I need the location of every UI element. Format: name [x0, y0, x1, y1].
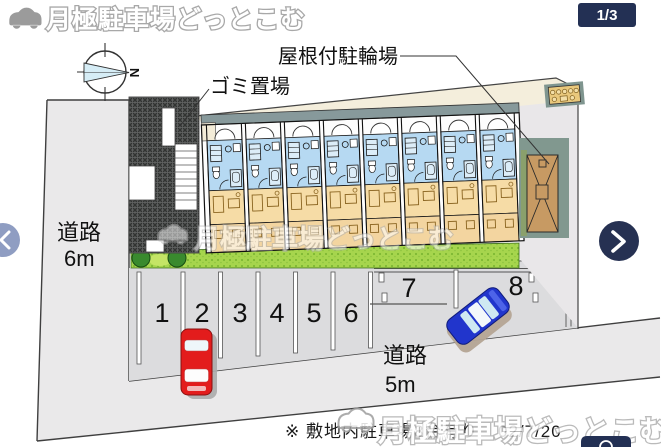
stall-number-5: 5	[306, 298, 321, 328]
pager-text: 1/3	[597, 7, 618, 24]
road-west-label: 道路 6m	[57, 220, 101, 271]
stall-number-2: 2	[194, 298, 209, 328]
footer-logo-badge[interactable]	[581, 436, 631, 447]
garbage-label: ゴミ置場	[210, 75, 290, 98]
svg-text:道路: 道路	[57, 220, 101, 245]
next-image-button[interactable]	[599, 221, 639, 261]
svg-text:6m: 6m	[64, 246, 95, 271]
stall-number-8: 8	[508, 271, 523, 301]
brand-title: 月極駐車場どっとこむ	[45, 5, 306, 34]
stall-number-6: 6	[343, 298, 358, 328]
stall-number-4: 4	[269, 298, 284, 328]
svg-text:道路: 道路	[383, 343, 427, 368]
bicycle-shed	[519, 138, 569, 238]
svg-text:5m: 5m	[385, 372, 416, 397]
red-car	[181, 329, 217, 399]
stall-number-7: 7	[401, 273, 416, 303]
watermark-middle-text: 月極駐車場どっとこむ	[193, 224, 454, 254]
parking-site-viewer: 1 2 3 4 5 6 7 8	[0, 0, 661, 447]
stall-number-1: 1	[154, 298, 169, 328]
watermark-middle: 月極駐車場どっとこむ	[158, 224, 454, 254]
bike-shed-label: 屋根付駐輪場	[278, 45, 398, 68]
meter-box	[544, 81, 585, 107]
compass-n-label: N	[127, 68, 142, 77]
stall-number-3: 3	[232, 298, 247, 328]
